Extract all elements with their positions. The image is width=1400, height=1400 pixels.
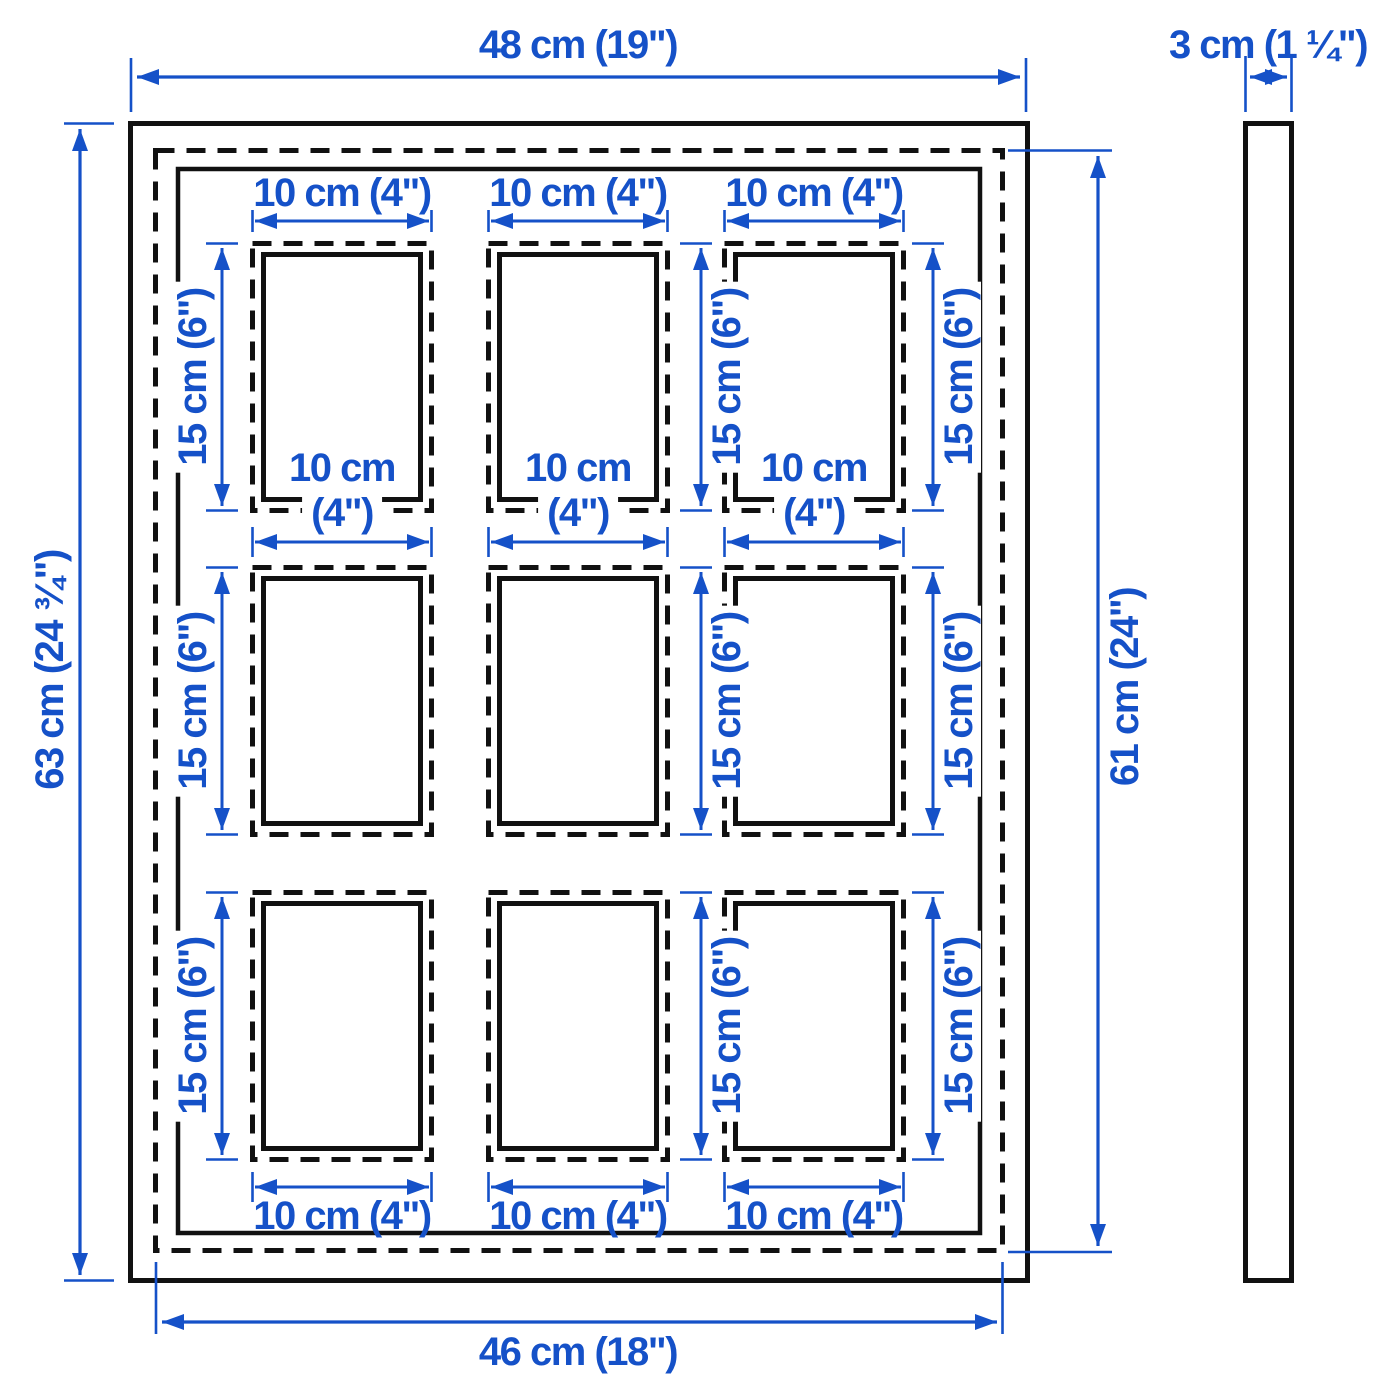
opening-cutout-solid [264,579,421,824]
dim-visible-height [1008,151,1112,1253]
side-profile-outline [1246,124,1292,1281]
backing-dashed-outline [156,151,1003,1251]
opening-height-label: 15 cm (6") [705,605,749,796]
opening-width-label-line1: 10 cm [289,448,395,488]
opening-r2c3 [725,568,904,835]
opening-cutout-solid [264,904,421,1149]
opening-height-label: 15 cm (6") [705,930,749,1121]
opening-width-label-line2: (4") [774,493,854,533]
opening-r3c2 [489,893,668,1160]
opening-width-label-line1: 10 cm [761,448,867,488]
photo-size-dashed [253,893,432,1160]
extension-line [206,893,944,1160]
opening-cutout-solid [500,904,657,1149]
opening-width-label: 10 cm (4") [253,173,430,213]
photo-size-dashed [725,568,904,835]
opening-height-label: 15 cm (6") [171,281,215,472]
opening-width-label: 10 cm (4") [489,173,666,213]
visible-width-label: 46 cm (18") [479,1332,677,1372]
opening-height-label: 15 cm (6") [937,605,981,796]
opening-r3c3 [725,893,904,1160]
opening-cutout-solid [736,904,893,1149]
photo-size-dashed [489,568,668,835]
opening-height-label: 15 cm (6") [937,281,981,472]
dimension-drawing-canvas: 48 cm (19") 3 cm (1 ¼") 63 cm (24 ¾") 61… [0,0,1400,1400]
opening-cutout-solid [500,579,657,824]
opening-width-label: 10 cm (4") [725,1196,902,1236]
dim-opening-height-row3 [206,893,944,1160]
overall-width-label: 48 cm (19") [479,25,677,65]
opening-r3c1 [253,893,432,1160]
dim-opening-height-row2 [206,568,944,835]
dim-visible-width [156,1262,1003,1334]
visible-height-label: 61 cm (24") [1103,581,1147,793]
depth-label: 3 cm (1 ¼") [1169,25,1367,65]
opening-height-label: 15 cm (6") [171,930,215,1121]
extension-line [206,568,944,835]
opening-width-label: 10 cm (4") [725,173,902,213]
opening-r2c2 [489,568,668,835]
photo-size-dashed [253,568,432,835]
opening-height-label: 15 cm (6") [937,930,981,1121]
opening-cutout-solid [736,579,893,824]
mat-front-outline [178,169,980,1233]
side-view [1246,124,1292,1281]
photo-size-dashed [725,893,904,1160]
opening-height-label: 15 cm (6") [705,281,749,472]
opening-width-label-line2: (4") [302,493,382,533]
opening-width-label-line1: 10 cm [525,448,631,488]
opening-width-label: 10 cm (4") [253,1196,430,1236]
overall-height-label: 63 cm (24 ¾") [28,543,72,797]
opening-width-label-line2: (4") [538,493,618,533]
front-view [131,124,1028,1281]
opening-height-label: 15 cm (6") [171,605,215,796]
opening-width-label: 10 cm (4") [489,1196,666,1236]
opening-r2c1 [253,568,432,835]
photo-size-dashed [489,893,668,1160]
photo-openings [253,244,904,1160]
